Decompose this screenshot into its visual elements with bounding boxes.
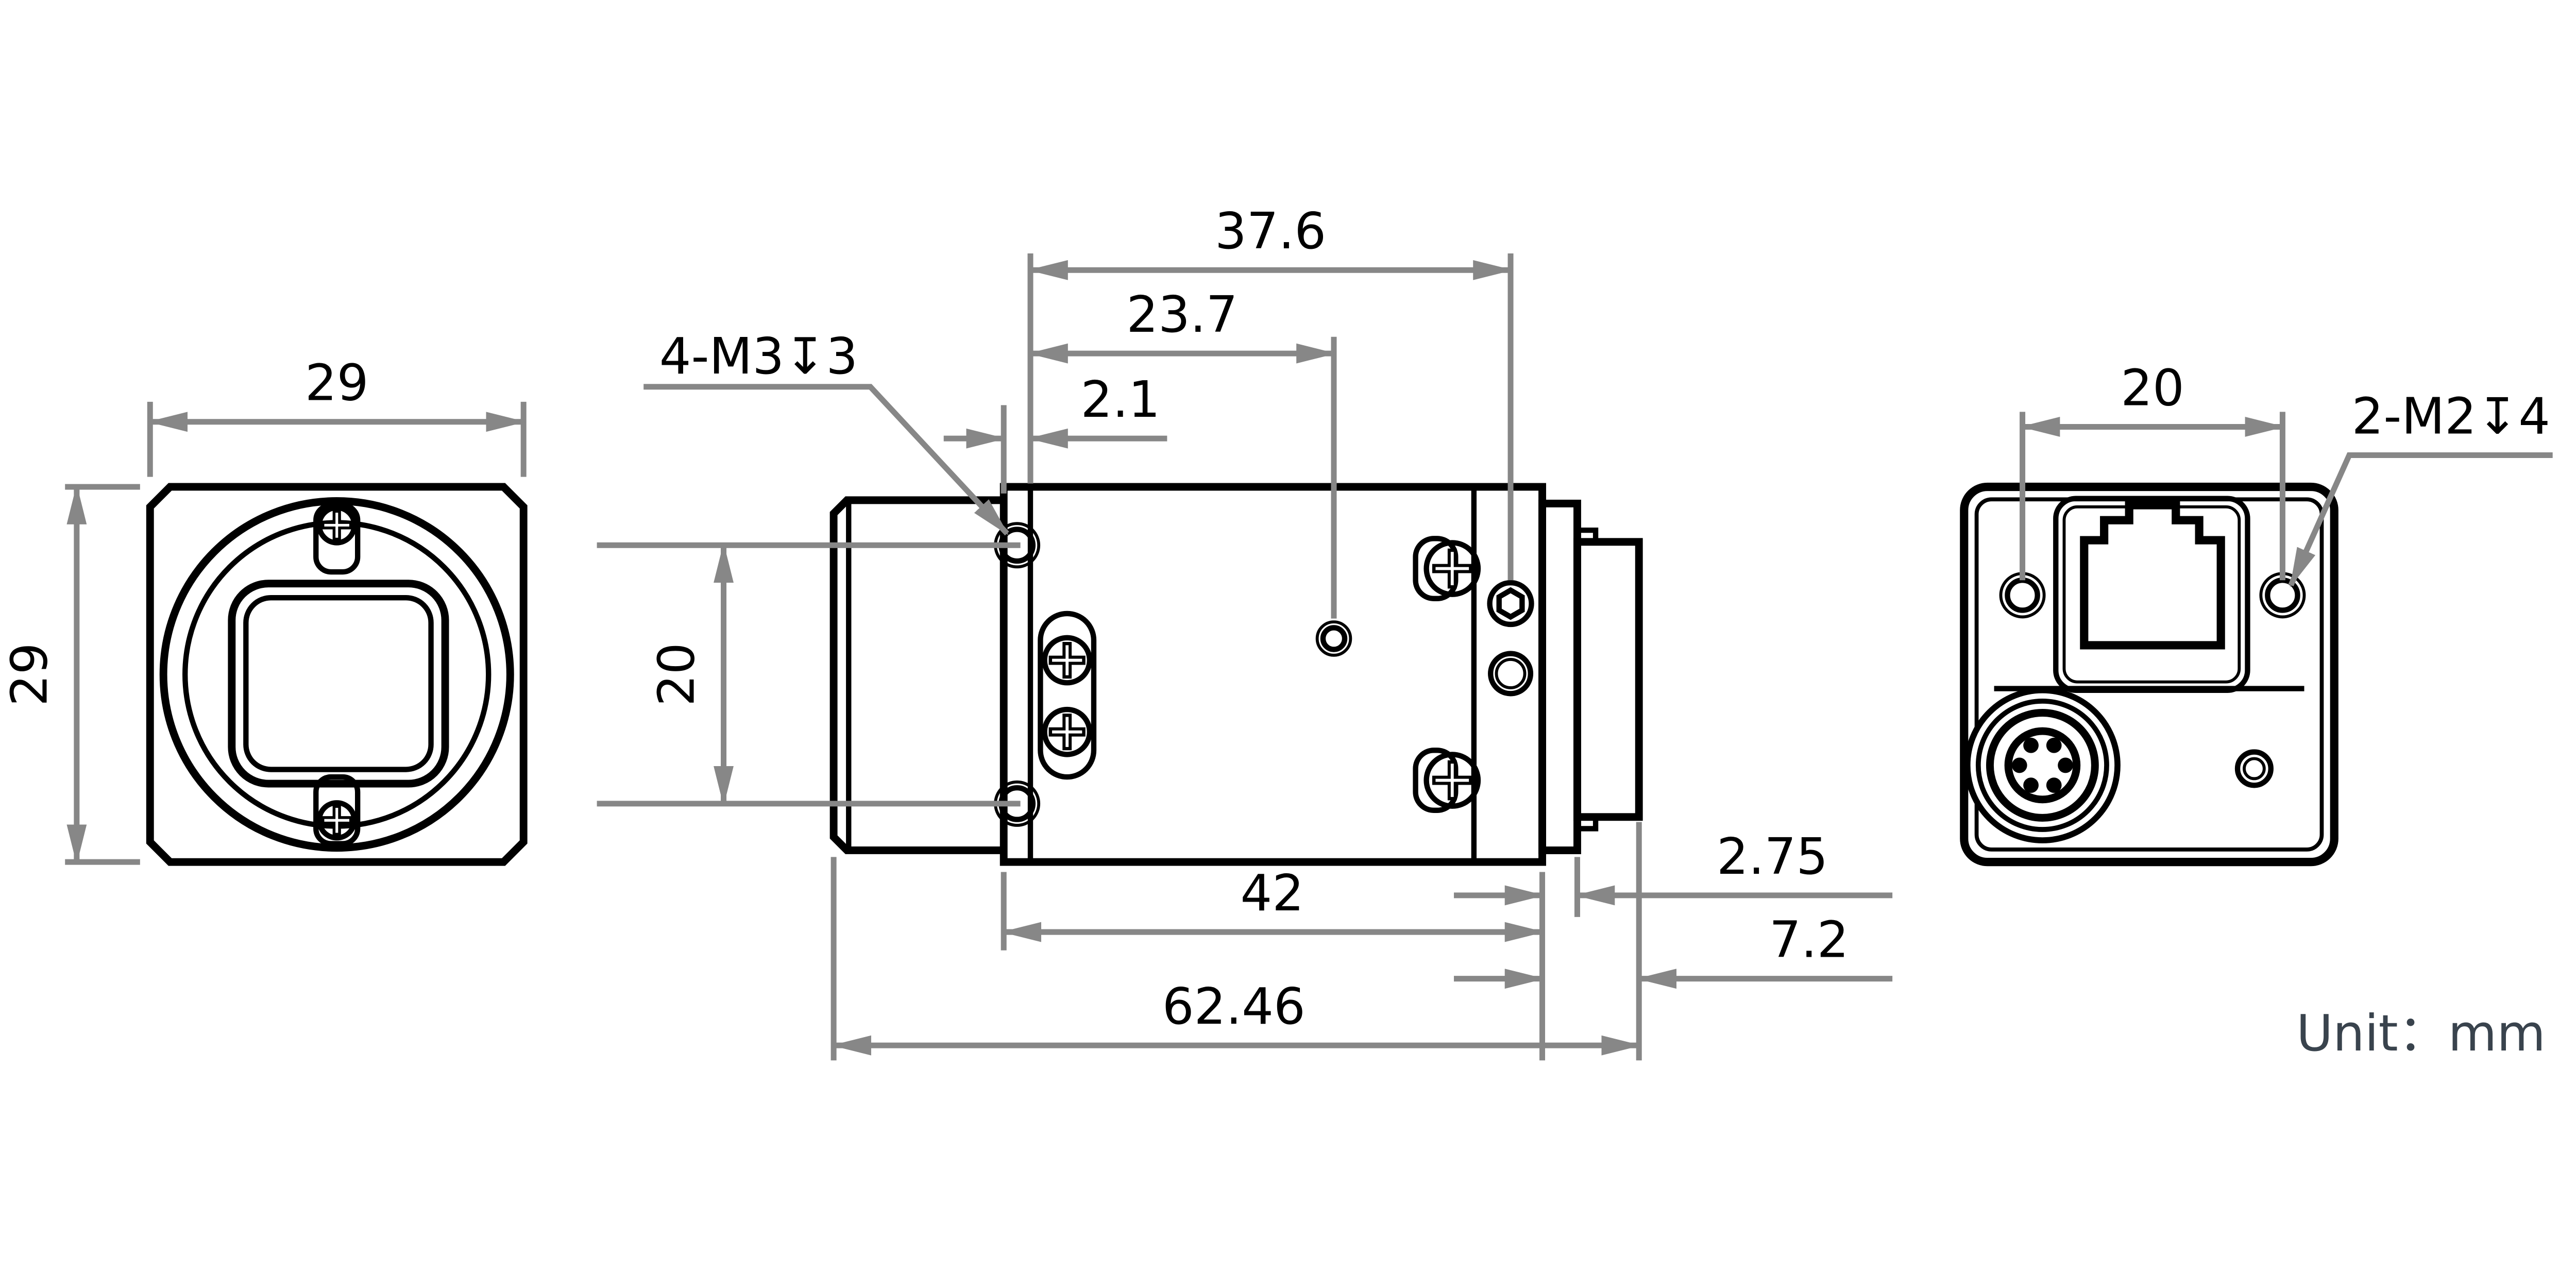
side-slot-screws (1040, 614, 1094, 777)
rear-connector-block (1577, 542, 1639, 817)
sensor-window-inner (246, 598, 431, 769)
dim-front-width: 29 (150, 354, 523, 477)
dim-hole-spacing-back: 20 (2023, 359, 2283, 580)
dim-rear-plate: 2.75 (1454, 827, 1892, 917)
svg-text:23.7: 23.7 (1126, 285, 1238, 344)
front-view: 29 29 (1, 354, 524, 862)
side-view: 4-M3↧3 37.6 23.7 2.1 20 (597, 202, 1893, 1060)
dim-front-height: 29 (1, 487, 140, 862)
svg-text:20: 20 (2121, 359, 2184, 417)
label-mount-screws-text: 4-M3↧3 (659, 327, 858, 385)
ethernet-port (2056, 499, 2247, 690)
lens-barrel-outline (834, 500, 1004, 851)
dim-total-length: 62.46 (834, 822, 1639, 1060)
camera-dimension-drawing: 29 29 (0, 0, 2576, 1288)
dim-front-to-center-hole: 23.7 (1030, 285, 1334, 619)
svg-text:2.75: 2.75 (1717, 827, 1828, 886)
svg-text:7.2: 7.2 (1769, 911, 1849, 969)
dim-hole-spacing-side: 20 (597, 545, 1021, 804)
hex-socket-screw (1490, 583, 1532, 624)
phillips-cross-icon (1049, 642, 1086, 679)
technical-drawing-canvas: 29 29 (0, 0, 2576, 1288)
sensor-window-outer (232, 584, 445, 784)
svg-text:42: 42 (1240, 864, 1304, 922)
dim-front-height-value: 29 (1, 642, 59, 706)
back-view: 20 2-M2↧4 (1964, 359, 2552, 862)
label-rear-screws-text: 2-M2↧4 (2352, 387, 2550, 445)
front-top-screw (316, 505, 358, 572)
phillips-cross-icon (1432, 549, 1472, 589)
dim-connector-length: 7.2 (1454, 911, 1892, 979)
unit-note: Unit：mm (2296, 1004, 2546, 1062)
rear-plain-hole (1490, 654, 1531, 694)
svg-text:20: 20 (647, 642, 705, 706)
phillips-cross-icon (1432, 760, 1472, 801)
rear-screw-bottom (1416, 750, 1478, 810)
ethernet-recess-inner (2064, 507, 2239, 682)
dim-flange-thickness: 2.1 (944, 370, 1167, 494)
svg-text:37.6: 37.6 (1215, 202, 1326, 260)
rear-plate (1543, 503, 1578, 850)
svg-text:2.1: 2.1 (1081, 370, 1160, 429)
dim-front-width-value: 29 (305, 354, 369, 412)
lens-mount-ring-outer (163, 501, 510, 848)
rear-screw-top (1416, 538, 1478, 599)
center-hole (1317, 622, 1351, 655)
rj45-jack-icon (2084, 505, 2221, 646)
phillips-cross-icon (1049, 714, 1086, 750)
indicator-hole (2238, 752, 2271, 786)
svg-text:62.46: 62.46 (1162, 977, 1306, 1036)
power-io-connector (1968, 690, 2117, 840)
